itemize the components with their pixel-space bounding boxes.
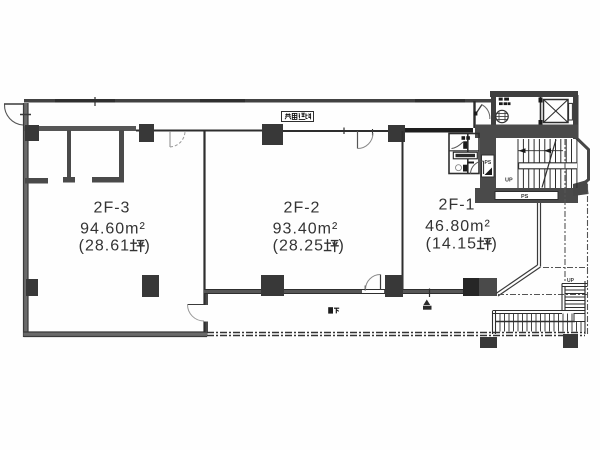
svg-text:(28.61: (28.61 [79,238,130,255]
svg-text:2F-2: 2F-2 [284,200,321,217]
svg-text:UP: UP [505,178,513,184]
svg-text:UP: UP [567,278,575,284]
svg-text:): ) [145,238,151,255]
svg-text:2F-1: 2F-1 [439,197,476,214]
svg-text:): ) [339,238,345,255]
svg-text:93.40m²: 93.40m² [273,221,339,238]
svg-text:PS: PS [521,194,529,200]
svg-text:94.60m²: 94.60m² [80,221,146,238]
svg-text:46.80m²: 46.80m² [425,218,491,235]
svg-text:2F-3: 2F-3 [94,200,131,217]
svg-text:PS: PS [485,160,492,166]
svg-text:(14.15: (14.15 [426,236,477,253]
svg-text:): ) [492,236,498,253]
svg-text:(28.25: (28.25 [273,238,324,255]
